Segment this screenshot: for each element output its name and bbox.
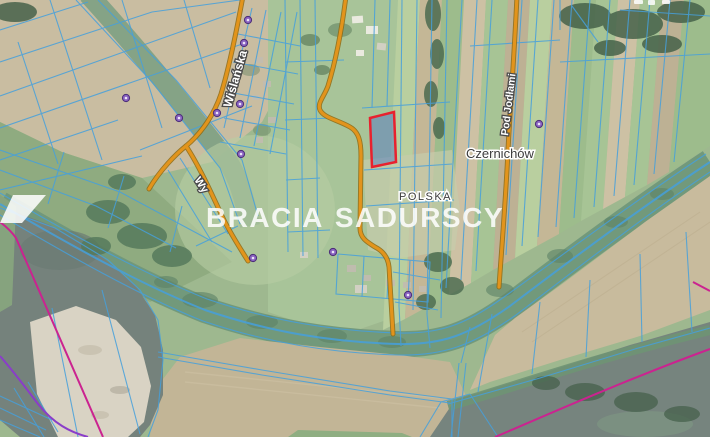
poi-marker[interactable] — [244, 16, 251, 23]
poi-marker[interactable] — [329, 248, 336, 255]
poi-marker[interactable] — [249, 254, 256, 261]
country-label-polska: POLSKA — [399, 191, 452, 203]
highlighted-parcel[interactable] — [370, 112, 396, 167]
poi-marker[interactable] — [237, 150, 244, 157]
map-canvas[interactable]: Wiślańska Pod Jodłami Wy Czernichów POLS… — [0, 0, 710, 437]
poi-marker[interactable] — [236, 100, 243, 107]
poi-marker[interactable] — [122, 94, 129, 101]
poi-marker[interactable] — [213, 109, 220, 116]
poi-marker[interactable] — [404, 291, 411, 298]
poi-marker[interactable] — [535, 120, 542, 127]
map-viewport[interactable]: Wiślańska Pod Jodłami Wy Czernichów POLS… — [0, 0, 710, 437]
place-label-czernichow: Czernichów — [466, 146, 535, 161]
poi-marker[interactable] — [175, 114, 182, 121]
poi-marker[interactable] — [240, 39, 247, 46]
